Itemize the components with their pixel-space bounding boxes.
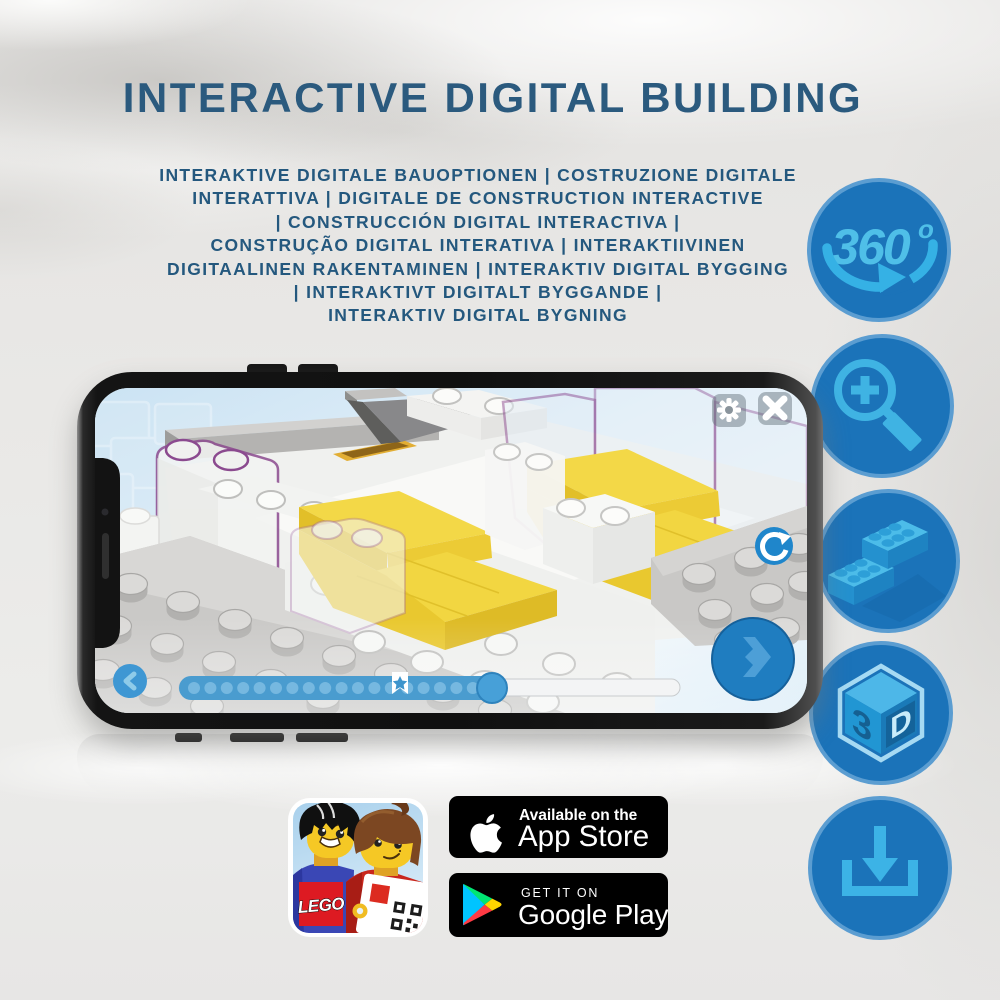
svg-text:GET IT ON: GET IT ON (521, 886, 599, 900)
svg-text:App Store: App Store (518, 820, 649, 853)
svg-text:LEGO: LEGO (297, 894, 345, 917)
svg-text:Google Play: Google Play (518, 899, 668, 930)
svg-text:360: 360 (831, 219, 911, 275)
